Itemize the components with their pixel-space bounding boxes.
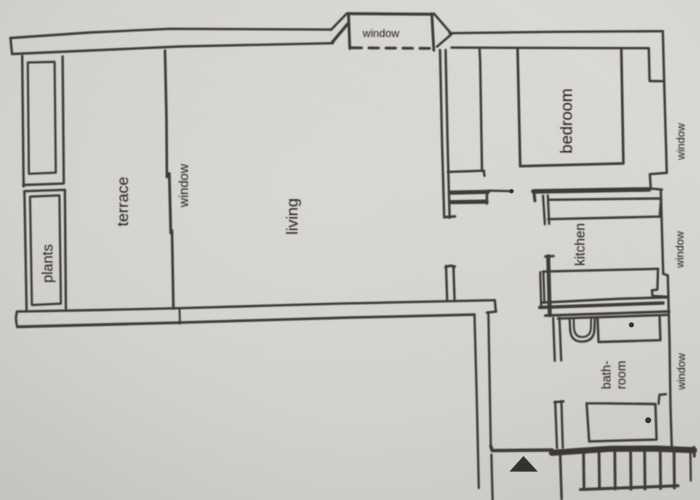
- svg-text:window: window: [675, 123, 687, 161]
- svg-text:kitchen: kitchen: [573, 223, 588, 266]
- svg-text:plants: plants: [40, 244, 56, 283]
- svg-text:window: window: [676, 353, 688, 391]
- svg-text:living: living: [285, 198, 302, 234]
- svg-text:bedroom: bedroom: [558, 88, 576, 153]
- svg-text:terrace: terrace: [115, 177, 132, 227]
- svg-text:window: window: [674, 231, 686, 269]
- svg-text:window: window: [362, 28, 400, 40]
- svg-text:bath-: bath-: [599, 361, 613, 390]
- svg-text:room: room: [614, 361, 628, 389]
- svg-text:window: window: [176, 163, 191, 208]
